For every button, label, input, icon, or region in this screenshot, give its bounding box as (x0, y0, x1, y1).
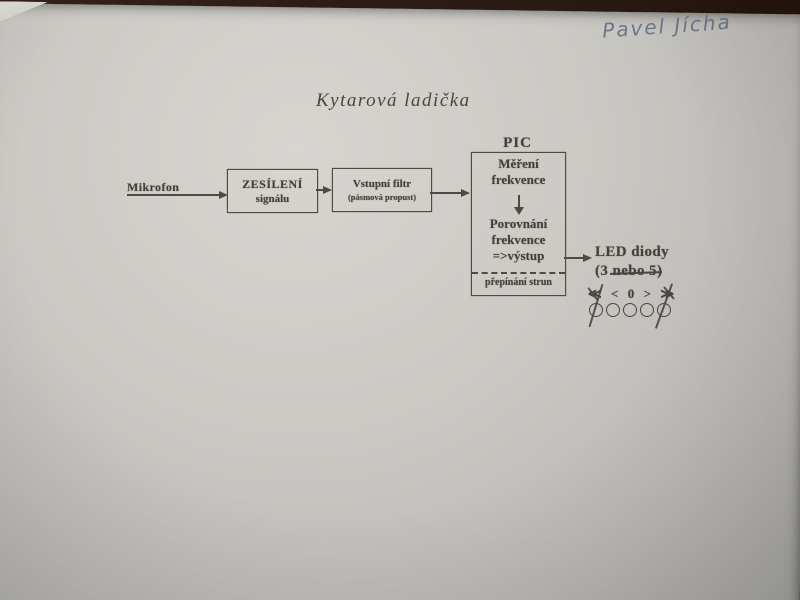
led-count-struck-text: nebo 5 (612, 263, 657, 280)
led-count-prefix: (3 (595, 263, 612, 279)
pic-block: Měření frekvence Porovnání frekvence =>v… (471, 152, 566, 296)
microphone-arrow-line (127, 194, 219, 196)
input-filter-block-line2: (pásmová propust) (348, 191, 416, 203)
down-arrow-icon (514, 195, 524, 215)
led-count-label: (3 nebo 5) (595, 263, 662, 280)
handwritten-author-name: Pavel Jícha (601, 5, 792, 42)
right-arrow-icon (583, 254, 592, 262)
led-circle (640, 303, 654, 317)
led-circle (623, 303, 637, 317)
string-switching-label: přepínání strun (472, 277, 565, 288)
measurement-step-line2: frekvence (472, 172, 565, 188)
amplifier-block: ZESÍLENÍ signálu (227, 169, 318, 213)
right-arrow-icon (323, 186, 332, 194)
microphone-label: Mikrofon (127, 180, 179, 195)
right-arrow-icon (461, 189, 470, 197)
flat-symbol: < (611, 287, 618, 301)
led-circle (606, 303, 620, 317)
measurement-step-line1: Měření (472, 156, 565, 172)
comparison-step-line1: Porovnání (472, 216, 565, 232)
comparison-step-line2: frekvence (472, 232, 565, 248)
led-output-label: LED diody (595, 244, 669, 261)
diagram-title: Kytarová ladička (316, 90, 471, 112)
comparison-step-line3: =>výstup (472, 248, 565, 264)
comparison-step: Porovnání frekvence =>výstup (472, 216, 565, 264)
diagram-layer: Pavel Jícha Kytarová ladička Mikrofon ZE… (0, 0, 800, 600)
input-filter-block: Vstupní filtr (pásmová propust) (332, 168, 432, 212)
sharp-symbol: > (644, 287, 651, 301)
pic-to-led-arrow-line (564, 257, 584, 259)
pic-chip-label: PIC (471, 135, 564, 152)
amplifier-block-line2: signálu (256, 192, 290, 206)
in-tune-symbol: 0 (628, 287, 635, 301)
input-filter-block-line1: Vstupní filtr (353, 177, 411, 191)
dashed-separator (472, 272, 565, 274)
measurement-step: Měření frekvence (472, 156, 565, 188)
filter-to-pic-arrow-line (430, 192, 462, 194)
photo-of-paper: Pavel Jícha Kytarová ladička Mikrofon ZE… (0, 0, 800, 600)
amplifier-block-line1: ZESÍLENÍ (242, 177, 303, 192)
